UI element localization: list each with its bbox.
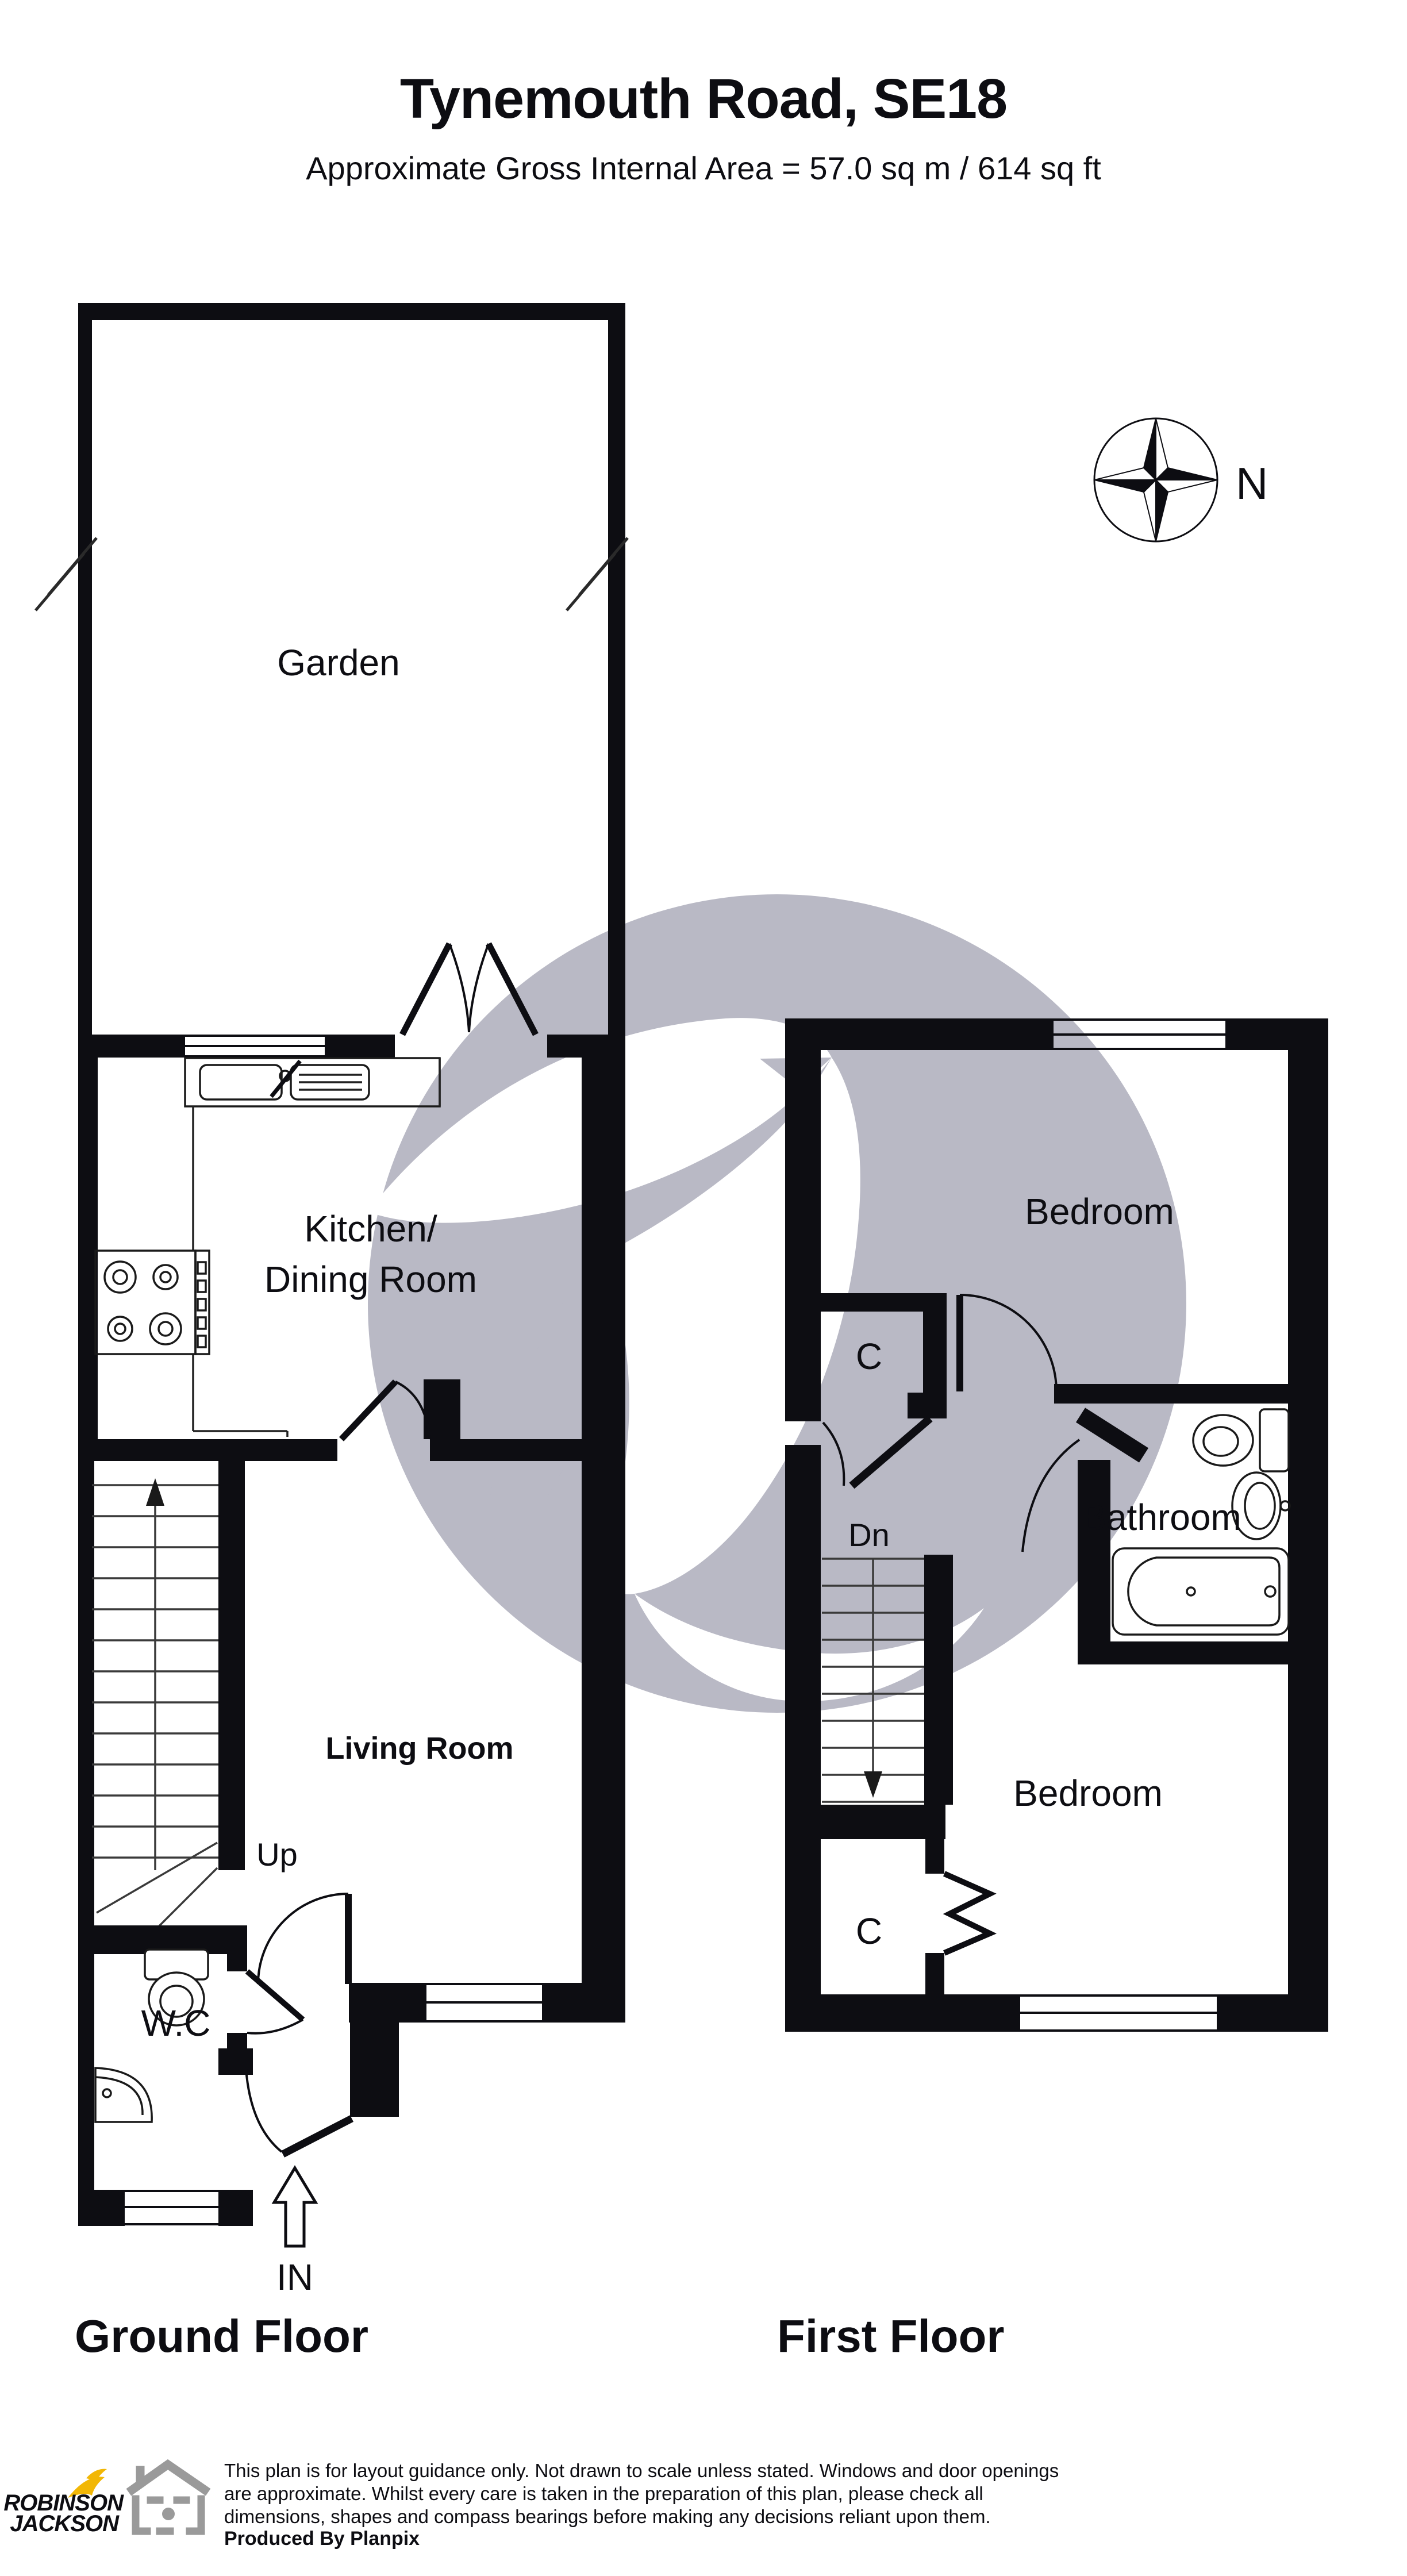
robinson-jackson-logo: ROBINSON JACKSON	[3, 2469, 124, 2536]
kitchen-window-icon	[185, 1036, 325, 1056]
disclaimer-line3: dimensions, shapes and compass bearings …	[224, 2506, 991, 2527]
first-floor-name: First Floor	[777, 2310, 1005, 2362]
compass-north-label: N	[1236, 458, 1268, 509]
closet-lower-label: C	[856, 1910, 882, 1952]
kitchen-label-line2: Dining Room	[264, 1259, 477, 1300]
bedroom-back-label: Bedroom	[1025, 1191, 1174, 1232]
front-door-icon	[246, 2069, 352, 2154]
living-window-icon	[426, 1984, 542, 2021]
bathroom-toilet-icon	[1193, 1409, 1289, 1471]
kitchen-label-line1: Kitchen/	[304, 1208, 437, 1249]
ff-left-wall-b	[785, 1445, 821, 2032]
bedroom-front-window-icon	[1020, 1996, 1217, 2031]
ff-bottom-wall-a	[785, 1994, 1020, 2032]
bathroom-bottom-wall	[1078, 1641, 1328, 1664]
house-right-wall	[582, 1035, 625, 2023]
ground-floor-name: Ground Floor	[75, 2310, 368, 2362]
stairs-down-label: Dn	[848, 1517, 890, 1553]
staircase-up: Up	[92, 1461, 298, 1948]
ff-left-wall-a	[785, 1018, 821, 1421]
ff-right-wall	[1288, 1018, 1328, 2032]
entrance-label: IN	[276, 2256, 313, 2298]
kitchen-living-wall-b	[430, 1439, 582, 1461]
bathroom-label: Bathroom	[1082, 1497, 1241, 1538]
entrance-area: IN	[246, 1894, 625, 2298]
wc-label: W.C	[141, 2002, 211, 2044]
house-left-wall-kitchen	[78, 1035, 98, 1460]
wc-window-icon	[125, 2191, 218, 2224]
bedroom-bathroom-wall	[1054, 1384, 1288, 1404]
up-arrow-icon	[146, 1478, 164, 1506]
wc-door-icon	[247, 1971, 303, 2033]
garden-right-wall	[608, 303, 625, 1035]
bifold-door-icon	[944, 1874, 990, 1953]
stairs-up-label: Up	[256, 1836, 298, 1873]
closet-lower: C	[856, 1839, 990, 1996]
disclaimer-line1: This plan is for layout guidance only. N…	[224, 2460, 1059, 2481]
kitchen-top-wall-b	[325, 1035, 395, 1058]
floorplan-canvas: Tynemouth Road, SE18 Approximate Gross I…	[0, 0, 1407, 2576]
floorplan-page: Tynemouth Road, SE18 Approximate Gross I…	[0, 0, 1407, 2576]
footer: ROBINSON JACKSON This plan is for layout…	[3, 2460, 1059, 2550]
bathroom-left-wall	[1078, 1460, 1110, 1645]
watermark-logo	[368, 894, 1186, 1713]
compass-rose: N	[1094, 418, 1268, 541]
closet-upper-label: C	[856, 1336, 882, 1377]
house-left-wall-lower	[78, 1460, 94, 2226]
planpix-house-icon	[132, 2464, 205, 2531]
living-room-label: Living Room	[326, 1731, 514, 1766]
garden-label: Garden	[277, 642, 399, 683]
ff-bottom-wall-b	[1217, 1994, 1328, 2032]
kitchen-sink-icon	[185, 1058, 440, 1106]
ff-top-wall-a	[785, 1018, 1054, 1050]
inner-door-icon	[258, 1894, 348, 1984]
disclaimer-line2: are approximate. Whilst every care is ta…	[224, 2483, 983, 2504]
logo-line2: JACKSON	[10, 2511, 120, 2536]
down-arrow-icon	[864, 1771, 882, 1798]
kitchen-hob-icon	[95, 1251, 209, 1354]
wc-basin-icon	[95, 2068, 152, 2122]
porch-corner-block	[218, 2048, 253, 2075]
kitchen-living-wall-a	[78, 1439, 337, 1461]
bedroom-front-label: Bedroom	[1013, 1773, 1163, 1814]
wall-break-marks-icon	[36, 538, 628, 610]
page-subtitle: Approximate Gross Internal Area = 57.0 s…	[306, 150, 1101, 186]
entrance-arrow-icon	[274, 2168, 316, 2246]
stair-bottom-wall	[819, 1805, 945, 1839]
wc-room: W.C	[78, 1925, 303, 2226]
bathtub-icon	[1113, 1548, 1289, 1635]
produced-by-label: Produced By Planpix	[224, 2528, 420, 2550]
garden-left-wall	[78, 303, 92, 1035]
garden-top-wall	[78, 303, 625, 320]
porch-pillar	[350, 1983, 399, 2117]
page-title: Tynemouth Road, SE18	[400, 67, 1007, 130]
